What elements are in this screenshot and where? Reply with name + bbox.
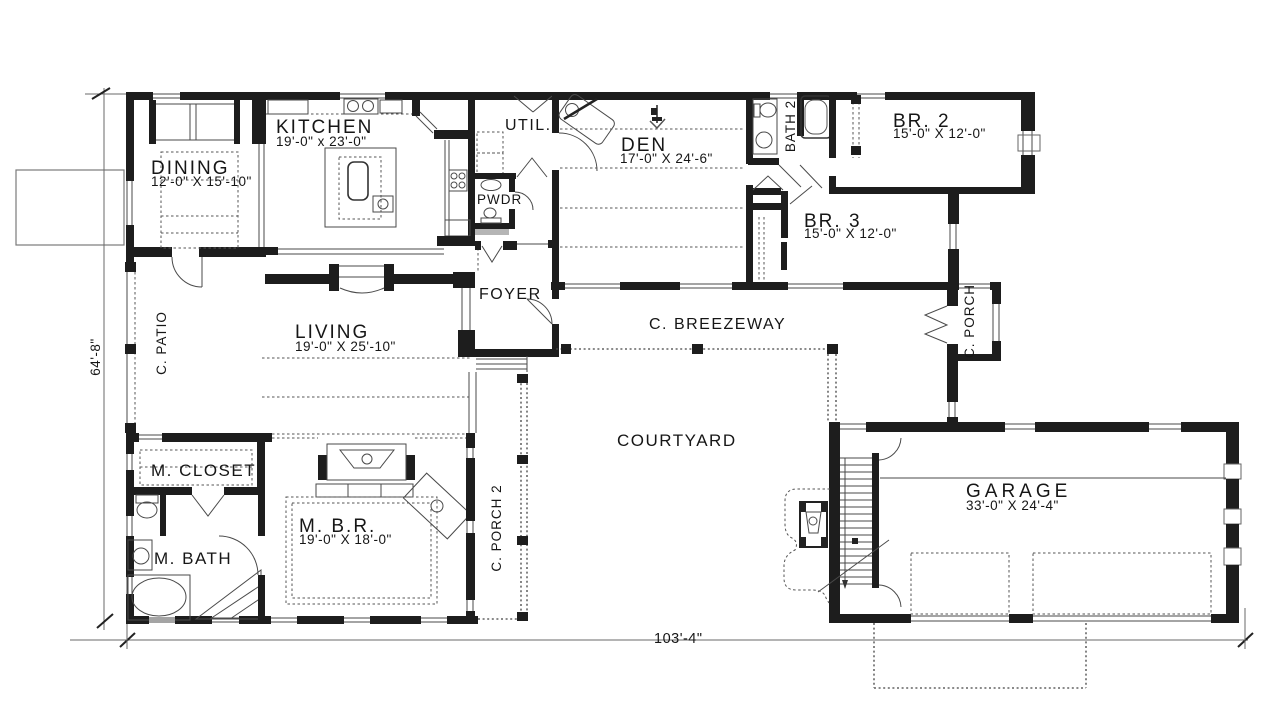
svg-text:PWDR: PWDR xyxy=(477,192,522,207)
svg-text:C. PATIO: C. PATIO xyxy=(154,311,169,375)
svg-text:33'-0" X 24'-4": 33'-0" X 24'-4" xyxy=(966,498,1059,513)
svg-text:BATH 2: BATH 2 xyxy=(783,100,798,152)
svg-text:FOYER: FOYER xyxy=(479,286,542,303)
svg-text:M. BATH: M. BATH xyxy=(154,549,232,568)
svg-text:C. PORCH 2: C. PORCH 2 xyxy=(489,484,504,571)
svg-text:15'-0" X 12'-0": 15'-0" X 12'-0" xyxy=(893,126,986,141)
svg-text:C. BREEZEWAY: C. BREEZEWAY xyxy=(649,316,786,333)
svg-text:103'-4": 103'-4" xyxy=(654,631,703,647)
svg-text:19'-0" X 25'-10": 19'-0" X 25'-10" xyxy=(295,339,396,354)
svg-text:UTIL.: UTIL. xyxy=(505,117,552,134)
svg-text:COURTYARD: COURTYARD xyxy=(617,431,737,450)
svg-text:64'-8": 64'-8" xyxy=(88,338,103,375)
svg-text:15'-0" X 12'-0": 15'-0" X 12'-0" xyxy=(804,226,897,241)
svg-text:M. CLOSET: M. CLOSET xyxy=(151,461,256,480)
svg-text:12'-0" X 15'-10": 12'-0" X 15'-10" xyxy=(151,174,252,189)
svg-text:19'-0" X 18'-0": 19'-0" X 18'-0" xyxy=(299,532,392,547)
svg-text:17'-0" X 24'-6": 17'-0" X 24'-6" xyxy=(620,151,713,166)
svg-text:19'-0" x 23'-0": 19'-0" x 23'-0" xyxy=(276,134,367,149)
svg-text:C. PORCH: C. PORCH xyxy=(962,284,977,358)
